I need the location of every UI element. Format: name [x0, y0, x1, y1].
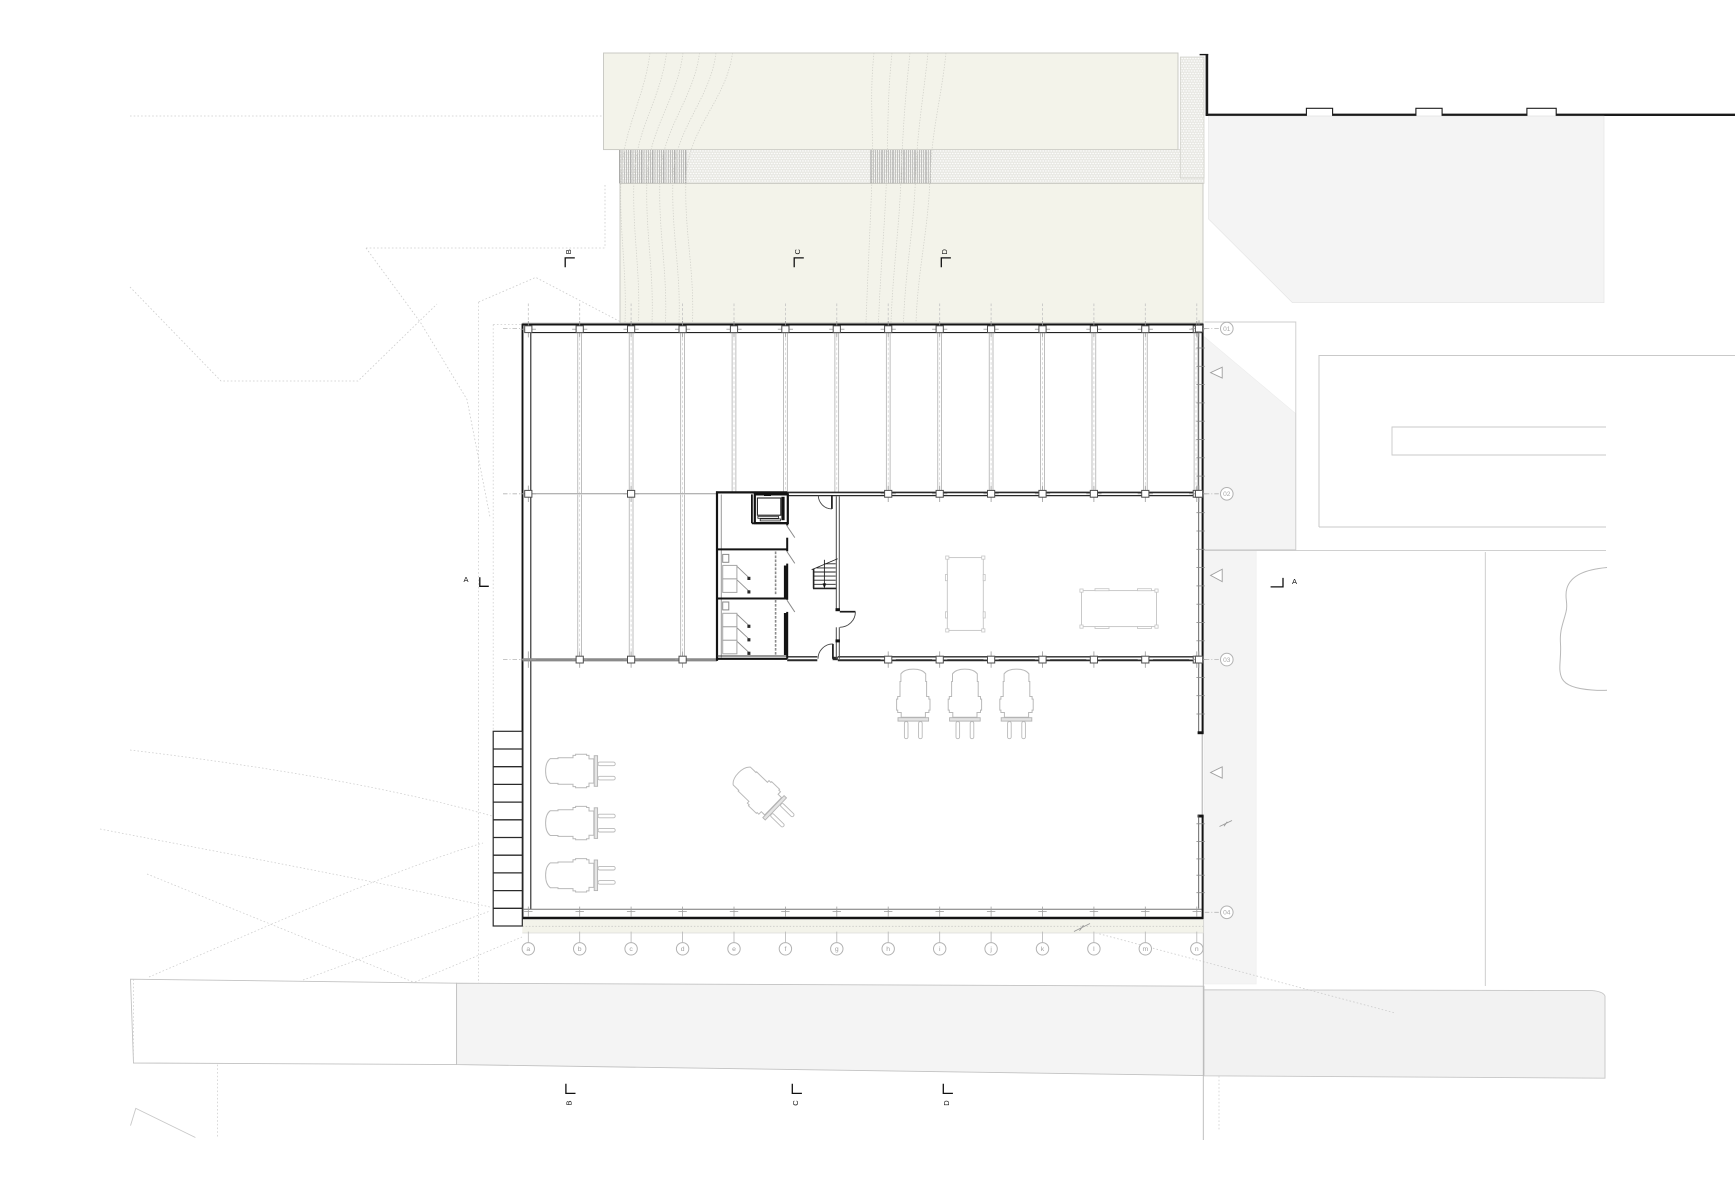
svg-text:b: b — [578, 946, 582, 953]
svg-text:k: k — [1041, 946, 1045, 953]
svg-text:C: C — [793, 249, 802, 255]
svg-text:D: D — [940, 249, 949, 255]
svg-text:e: e — [732, 946, 736, 953]
svg-text:B: B — [564, 249, 573, 254]
svg-text:C: C — [791, 1100, 800, 1106]
svg-text:g: g — [835, 946, 839, 953]
svg-text:d: d — [681, 946, 685, 953]
svg-text:n: n — [1195, 946, 1199, 953]
svg-text:02: 02 — [1223, 491, 1231, 498]
svg-text:m: m — [1142, 946, 1148, 953]
svg-text:A: A — [1292, 577, 1297, 586]
svg-text:04: 04 — [1223, 910, 1231, 917]
svg-text:c: c — [629, 946, 633, 953]
svg-text:D: D — [942, 1100, 951, 1106]
svg-text:a: a — [526, 946, 530, 953]
svg-text:A: A — [463, 575, 468, 584]
svg-text:01: 01 — [1223, 326, 1231, 333]
svg-text:f: f — [784, 946, 786, 953]
svg-text:B: B — [565, 1100, 574, 1105]
svg-text:03: 03 — [1223, 657, 1231, 664]
svg-text:h: h — [886, 946, 890, 953]
